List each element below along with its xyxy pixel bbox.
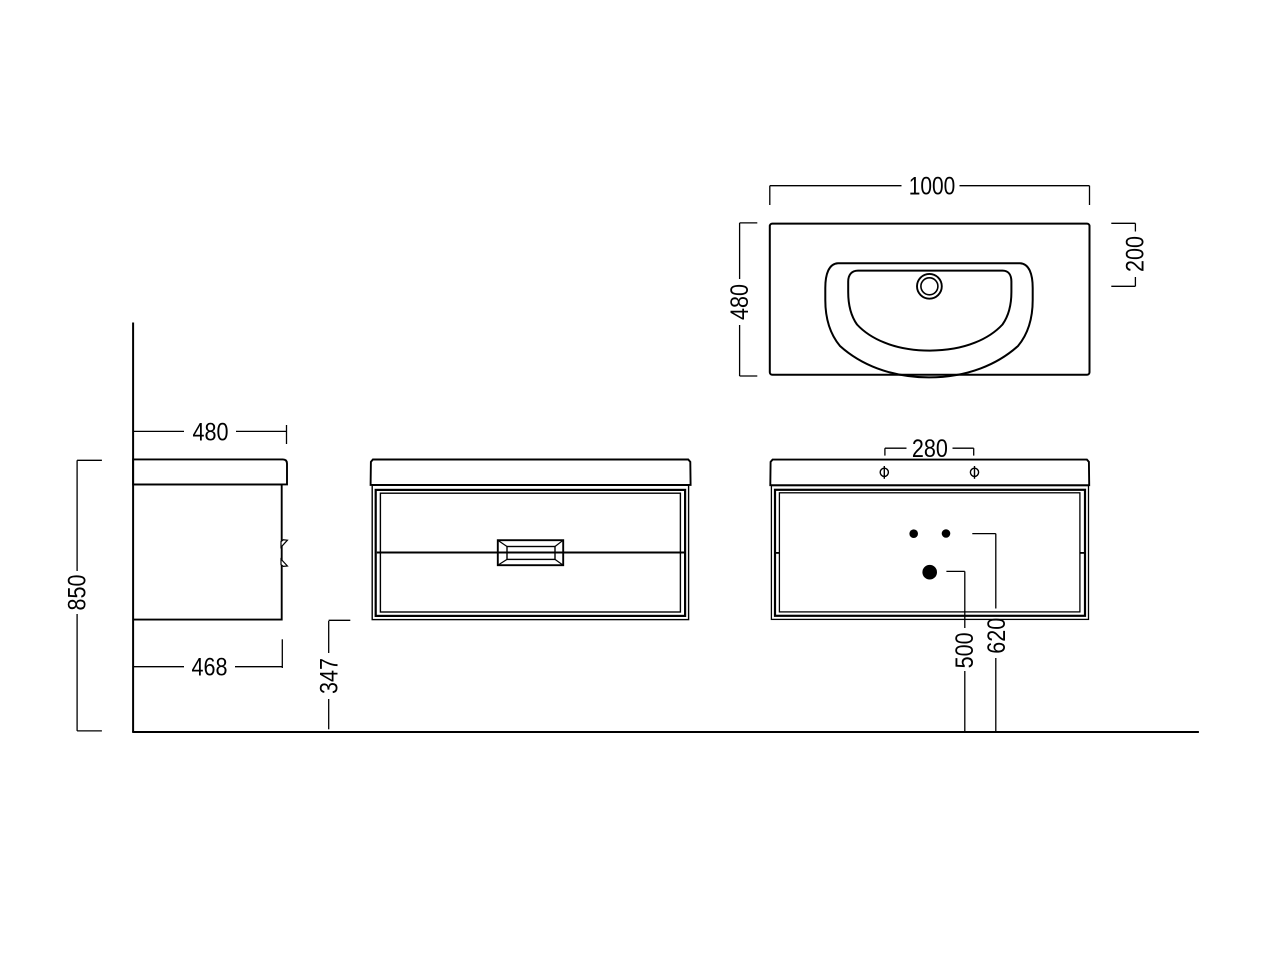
svg-text:468: 468 — [192, 654, 228, 682]
svg-text:347: 347 — [315, 658, 343, 694]
svg-text:480: 480 — [193, 418, 229, 446]
svg-text:620: 620 — [983, 618, 1011, 654]
svg-text:200: 200 — [1122, 236, 1150, 272]
svg-text:1000: 1000 — [909, 173, 956, 201]
svg-text:850: 850 — [64, 575, 92, 611]
svg-text:480: 480 — [726, 284, 754, 320]
svg-text:500: 500 — [951, 632, 979, 668]
svg-text:280: 280 — [912, 435, 948, 463]
